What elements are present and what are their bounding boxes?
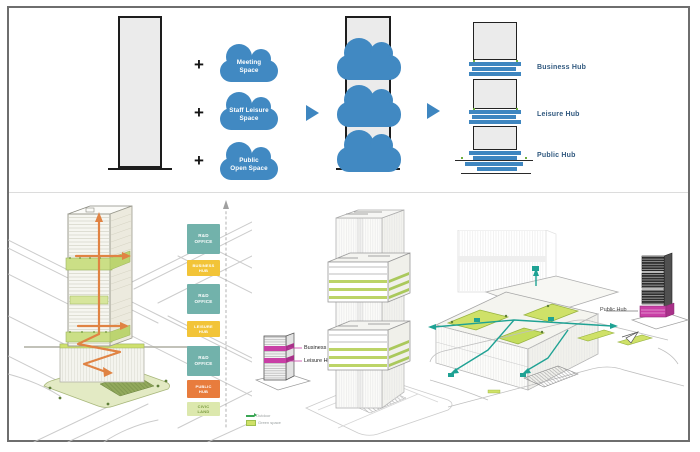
- meeting-space-cloud: Meeting Space: [220, 44, 278, 82]
- staff-leisure-space-cloud: Staff Leisure Space: [220, 92, 278, 130]
- inserted-cloud: [337, 38, 401, 80]
- public-hub-key-label: Public Hub: [600, 307, 627, 313]
- inserted-cloud: [337, 85, 401, 127]
- plus-sign: +: [194, 104, 204, 121]
- inserted-cloud: [337, 130, 401, 172]
- office-block: [473, 126, 517, 150]
- cloud-body: [337, 102, 401, 127]
- arrow-right-icon: [427, 103, 440, 119]
- mini-legend-label: Green space: [258, 421, 281, 425]
- public-open-space-cloud: Public Open Space: [220, 142, 278, 180]
- legend-office: R&D OFFICE: [187, 346, 220, 376]
- green-swatch-icon: [246, 420, 256, 426]
- legend-leisure-hub: LEISURE HUB: [187, 321, 220, 337]
- cloud-label: Public Open Space: [220, 142, 278, 180]
- empty-tower-base: [108, 168, 172, 170]
- office-block: [473, 22, 517, 60]
- public-hub-band: [469, 151, 521, 174]
- empty-tower: [118, 16, 162, 168]
- mini-legend-label: Outdoor: [256, 414, 270, 418]
- cloud-body: [337, 55, 401, 80]
- cloud-body: [337, 147, 401, 172]
- legend-business-hub: BUSINESS HUB: [187, 260, 220, 276]
- legend-civic-land: CIVIC LAND: [187, 402, 220, 416]
- legend-public-hub: PUBLIC HUB: [187, 380, 220, 398]
- wireframe-tower: [336, 210, 404, 408]
- plus-sign: +: [194, 56, 204, 73]
- business-hub-band: [469, 62, 521, 77]
- mini-legend: Outdoor Green space: [246, 414, 302, 428]
- upper-hub-box: [328, 253, 410, 302]
- cloud-label: Staff Leisure Space: [220, 92, 278, 130]
- cloud-label: Meeting Space: [220, 44, 278, 82]
- legend-office: R&D OFFICE: [187, 284, 220, 314]
- legend-office: R&D OFFICE: [187, 224, 220, 254]
- ground-line: [461, 173, 531, 174]
- green-arrow-icon: [246, 415, 254, 416]
- business-hub-label: Business Hub: [537, 64, 586, 71]
- panel-divider: [9, 192, 688, 193]
- plus-sign: +: [194, 152, 204, 169]
- leisure-hub-band: [469, 110, 521, 124]
- leisure-hub-label: Leisure Hub: [537, 111, 580, 118]
- right-axon-drawing: [428, 230, 692, 426]
- arrow-right-icon: [306, 105, 319, 121]
- ground-line: [455, 160, 533, 161]
- lower-hub-box: [328, 321, 410, 370]
- office-block: [473, 79, 517, 109]
- public-hub-key-tower: [606, 253, 688, 329]
- green-strip: [488, 390, 500, 393]
- slide: + + + Meeting Space Staff Leisure Space …: [0, 0, 700, 452]
- public-hub-label: Public Hub: [537, 152, 576, 159]
